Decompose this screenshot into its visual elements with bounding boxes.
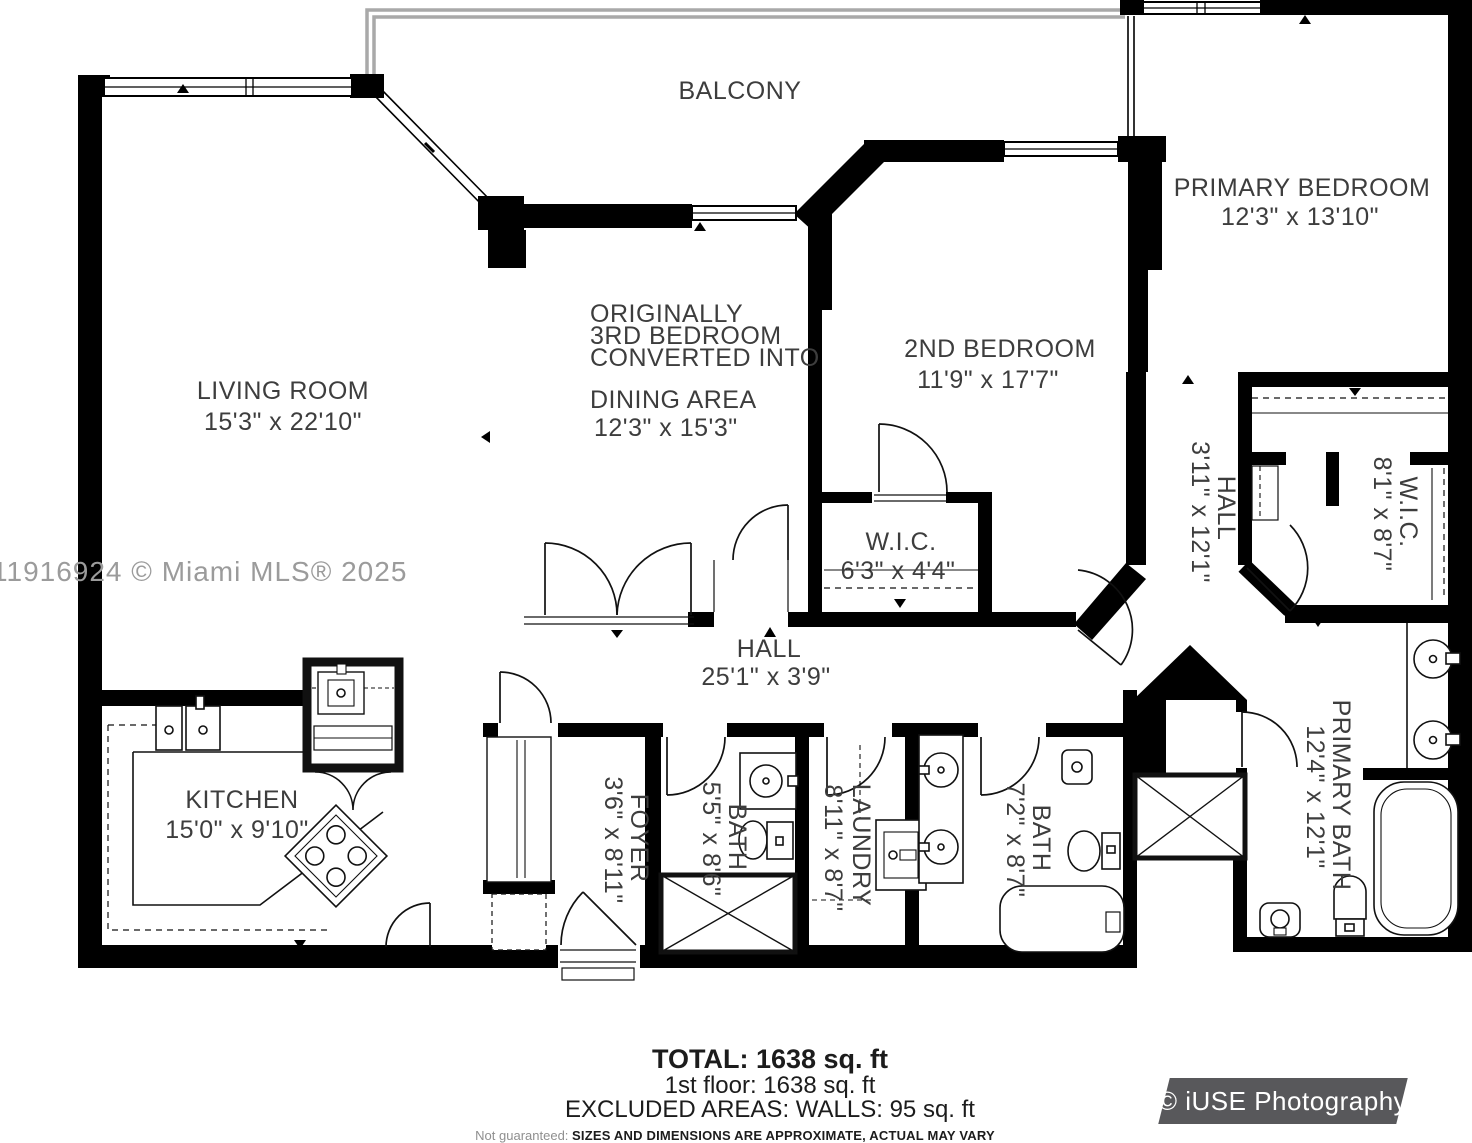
dining-dims: 12'3" x 15'3"	[594, 414, 738, 442]
bath-hall-dims: 5'5" x 8'6"	[697, 782, 725, 897]
foyer-closet	[487, 737, 551, 950]
foyer-dims: 3'6" x 8'11"	[599, 776, 627, 903]
balcony-label: BALCONY	[679, 77, 802, 105]
wic-primary-label: W.I.C.	[1394, 476, 1422, 547]
bath-hall-label: BATH	[723, 804, 751, 871]
primary-bedroom-dims: 12'3" x 13'10"	[1221, 203, 1379, 231]
hall-main-label: HALL	[737, 635, 802, 663]
primary-bedroom-label: PRIMARY BEDROOM	[1174, 174, 1431, 202]
kitchen-label: KITCHEN	[185, 786, 298, 814]
bath-second-label: BATH	[1027, 805, 1055, 872]
kitchen-wet-bar	[307, 662, 399, 810]
second-bedroom-label: 2ND BEDROOM	[904, 335, 1096, 363]
wic-primary-dims: 8'1" x 8'7"	[1368, 457, 1396, 572]
dining-label: DINING AREA	[590, 386, 757, 414]
primary-corner-sink	[1260, 903, 1300, 937]
bath-second-dims: 7'2" x 8'7"	[1001, 783, 1029, 898]
floor-plan-page: BALCONY LIVING ROOM 15'3" x 22'10" ORIGI…	[0, 0, 1472, 1143]
living-room-label: LIVING ROOM	[197, 377, 369, 405]
wic2-label: W.I.C.	[865, 528, 936, 556]
kitchen-dims: 15'0" x 9'10"	[165, 816, 309, 844]
living-room-dims: 15'3" x 22'10"	[204, 408, 362, 436]
balcony-railing	[367, 10, 1125, 86]
shower-primary	[1135, 775, 1245, 858]
primary-bath-label: PRIMARY BATH	[1327, 700, 1355, 891]
hall-main-dims: 25'1" x 3'9"	[701, 663, 830, 691]
windows-layer	[104, 2, 1261, 220]
disclaimer-prefix: Not guaranteed:	[475, 1128, 568, 1143]
bath2-toilet	[1068, 831, 1120, 871]
disclaimer-text: Not guaranteed: SIZES AND DIMENSIONS ARE…	[475, 1128, 995, 1143]
total-area-text: TOTAL: 1638 sq. ft	[652, 1044, 888, 1075]
bath1-vanity	[740, 753, 798, 809]
hall-primary-label: HALL	[1212, 476, 1240, 541]
laundry-dims: 8'11" x 8'7"	[819, 784, 847, 911]
photographer-logo: © iUSE Photography	[1158, 1078, 1407, 1124]
laundry-label: LAUNDRY	[847, 784, 875, 907]
disclaimer-body: SIZES AND DIMENSIONS ARE APPROXIMATE, AC…	[572, 1128, 995, 1143]
mls-watermark: 11916924 © Miami MLS® 2025	[0, 556, 407, 588]
primary-bath-dims: 12'4" x 12'1"	[1301, 725, 1329, 869]
bath2-vanity	[919, 735, 963, 883]
wic2-dims: 6'3" x 4'4"	[841, 557, 956, 585]
foyer-label: FOYER	[625, 794, 653, 883]
photographer-logo-text: © iUSE Photography	[1158, 1086, 1407, 1117]
dining-note-3: CONVERTED INTO	[590, 344, 820, 372]
excluded-areas-text: EXCLUDED AREAS: WALLS: 95 sq. ft	[565, 1096, 975, 1124]
shower-bath1	[661, 875, 795, 952]
bath2-wall-sink	[1062, 750, 1092, 784]
second-bedroom-dims: 11'9" x 17'7"	[917, 366, 1059, 394]
hall-primary-dims: 3'11" x 12'1"	[1186, 441, 1214, 583]
primary-tub	[1374, 782, 1458, 935]
